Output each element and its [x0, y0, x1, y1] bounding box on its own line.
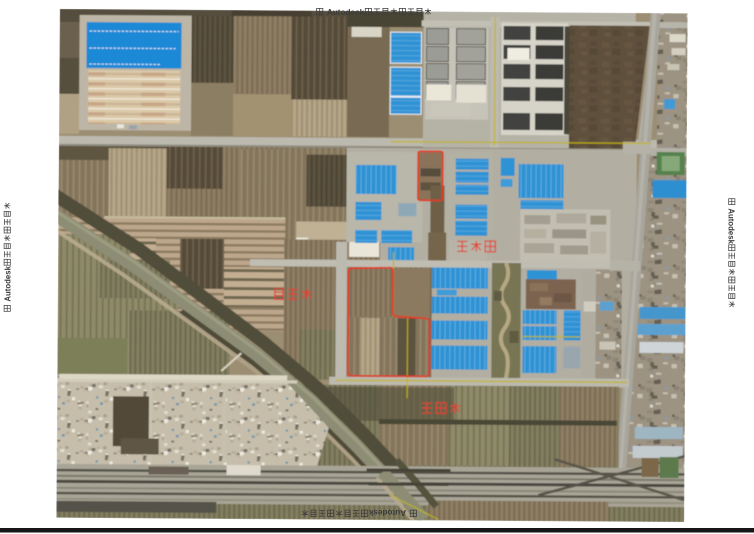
- svg-text:Autodesk: Autodesk: [3, 265, 12, 301]
- svg-text:Autodesk: Autodesk: [727, 208, 736, 244]
- svg-text:Autodesk: Autodesk: [368, 508, 406, 517]
- svg-text:Autodesk: Autodesk: [327, 8, 365, 17]
